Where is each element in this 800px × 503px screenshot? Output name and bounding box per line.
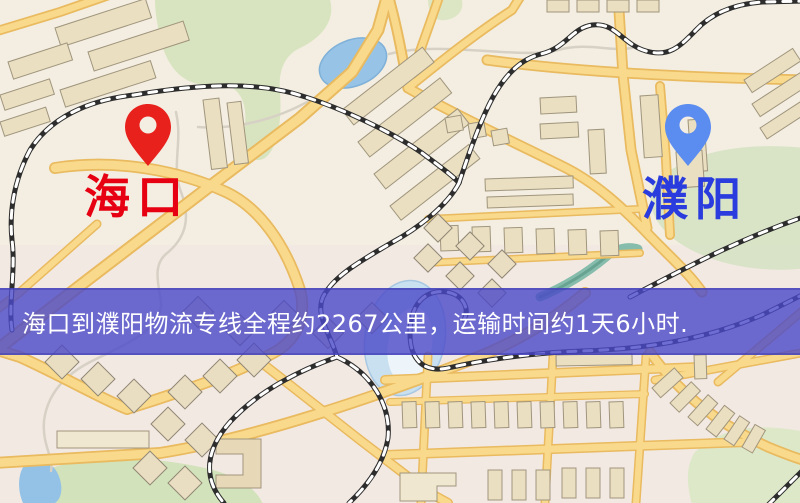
destination-marker[interactable] xyxy=(664,102,712,168)
route-info-text: 海口到濮阳物流专线全程约2267公里，运输时间约1天6小时. xyxy=(22,304,688,339)
origin-city-label: 海口 xyxy=(84,174,190,220)
destination-pin-icon[interactable] xyxy=(664,102,712,168)
map-background xyxy=(0,0,800,503)
map-screenshot: 海口 濮阳 海口到濮阳物流专线全程约2267公里，运输时间约1天6小时. xyxy=(0,0,800,503)
route-info-banner: 海口到濮阳物流专线全程约2267公里，运输时间约1天6小时. xyxy=(0,288,800,355)
destination-city-label: 濮阳 xyxy=(642,176,748,222)
origin-marker[interactable] xyxy=(124,102,172,168)
origin-pin-icon[interactable] xyxy=(124,102,172,168)
